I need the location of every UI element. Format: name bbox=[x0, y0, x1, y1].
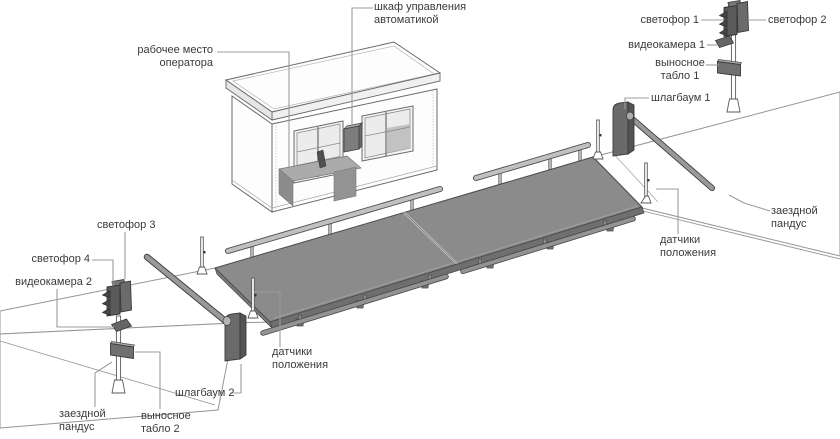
traffic-light-2-icon bbox=[737, 2, 749, 33]
video-camera-1-icon bbox=[716, 36, 734, 48]
traffic-light-3-icon bbox=[120, 281, 132, 312]
label-traffic-light-4: светофор 4 bbox=[32, 253, 90, 266]
label-position-sensors-left: датчики положения bbox=[272, 346, 328, 371]
label-traffic-light-1: светофор 1 bbox=[641, 14, 699, 27]
label-operator-workplace: рабочее место оператора bbox=[137, 44, 213, 69]
traffic-light-pole-right bbox=[716, 1, 749, 113]
label-position-sensors-right: датчики положения bbox=[660, 234, 716, 259]
label-video-camera-1: видеокамера 1 bbox=[628, 39, 705, 52]
control-cabinet-box bbox=[344, 123, 362, 152]
cabin-window-2 bbox=[362, 106, 413, 161]
label-entry-ramp-left: заездной пандус bbox=[59, 408, 106, 433]
label-traffic-light-2: светофор 2 bbox=[768, 14, 826, 27]
operator-cabin bbox=[226, 42, 440, 212]
label-barrier-2: шлагбаум 2 bbox=[175, 387, 235, 400]
label-video-camera-2: видеокамера 2 bbox=[15, 276, 92, 289]
label-remote-display-2: выносное табло 2 bbox=[141, 410, 191, 435]
label-remote-display-1: выносное табло 1 bbox=[652, 57, 708, 82]
label-barrier-1: шлагбаум 1 bbox=[651, 92, 711, 105]
label-traffic-light-3: светофор 3 bbox=[97, 219, 155, 232]
label-control-cabinet: шкаф управления автоматикой bbox=[374, 1, 466, 26]
weighbridge-diagram: шкаф управления автоматикой рабочее мест… bbox=[0, 0, 840, 439]
label-entry-ramp-right: заездной пандус bbox=[771, 205, 818, 230]
